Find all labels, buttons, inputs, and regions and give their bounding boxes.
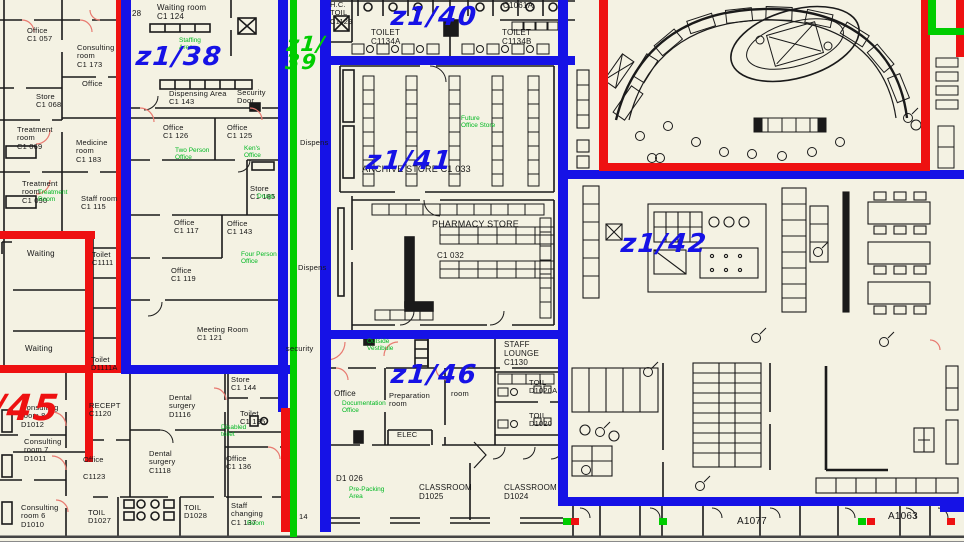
zone-boundary-blue [121,0,131,374]
room-label: Office C1 126 [163,124,188,141]
zone-boundary-red [599,163,930,171]
room-label: CLASSROOM D1025 [419,484,472,502]
room-label: A1063 [888,511,918,522]
zone-boundary-red [281,408,290,532]
annotation-label: Ken's Office [244,145,261,159]
room-label: Dispensing Area C1 143 [169,90,227,107]
room-label: Consulting room 6 D1010 [21,504,58,529]
room-label: H.C. TOIL C1129 [330,1,353,26]
room-label: Toilet C1111 [92,251,113,268]
room-label: ELEC [397,431,417,439]
room-label: security [286,345,313,353]
annotation-label: Drugs [257,193,274,200]
zone-label-z141[interactable]: z1/41 [365,150,453,172]
room-label: TOIL D1027 [88,509,111,526]
zone-label-z142[interactable]: z1/42 [620,233,708,255]
room-label: Waiting room C1 124 [157,4,206,22]
annotation-label: Future Office Store [461,115,495,129]
zone-label-z140[interactable]: z1/40 [390,6,478,28]
room-label: Dispens [300,139,329,147]
status-marker [858,518,866,525]
room-label: Office C1 125 [227,124,252,141]
zone-boundary-green [928,28,964,35]
zone-label-z138[interactable]: z1/38 [135,46,223,68]
room-label: 28 [132,10,141,19]
zone-boundary-blue [121,365,291,374]
annotation-label: Two Person Office [175,147,209,161]
room-label: Treatment room C1 069 [17,126,53,151]
room-label: Preparation room [389,392,430,409]
zone-label-z139[interactable]: z1/ 39 [284,36,326,72]
floor-plan-drawing [0,0,964,545]
room-label: Meeting Room C1 121 [197,326,248,343]
room-label: 14 [299,513,308,521]
annotation-label: Treatment Room [38,189,67,203]
zone-label-z146[interactable]: z1/46 [390,364,478,386]
room-label: TOIL D1020A [529,379,557,396]
status-marker [563,518,571,525]
status-marker [571,518,579,525]
zone-boundary-red [599,0,608,170]
room-label: Office C1 143 [227,220,252,237]
room-label: Office C1 117 [174,219,199,236]
zone-boundary-blue [563,497,964,506]
room-label: Store C1 144 [231,376,256,393]
room-label: room [451,390,469,398]
room-label: Store C1 068 [36,93,61,110]
room-label: PHARMACY STORE [432,219,519,229]
room-label: Office [82,80,103,88]
zone-boundary-blue [940,503,964,512]
room-label: Waiting [25,345,53,354]
room-label: Waiting [27,250,55,259]
floor-plan-viewer: Office C1 057Consulting room C1 173Offic… [0,0,964,545]
zone-label-45[interactable]: /45 [0,394,61,425]
room-label: A1077 [737,516,767,527]
room-label: Office C1 057 [27,27,52,44]
room-label: Office C1 136 [226,455,251,472]
zone-boundary-red [0,231,95,239]
room-label: RECEPT C1120 [89,402,121,419]
room-label: Dental surgery D1116 [169,394,195,419]
room-label: C1 032 [437,252,464,261]
room-label: Office C1123 [83,456,106,481]
room-label: TOIL D1020 [529,412,552,429]
annotation-label: Room [247,520,264,527]
zone-boundary-green [290,0,297,537]
room-label: Staff room C1 115 [81,195,117,212]
status-marker [659,518,667,525]
zone-boundary-blue [331,330,558,339]
room-label: D1 026 [336,475,363,484]
room-label: TOILET C1134B [502,29,532,47]
room-label: Dispens [298,264,327,272]
status-marker [867,518,875,525]
room-label: Medicine room C1 183 [76,139,108,164]
room-label: CLASSROOM D1024 [504,484,557,502]
annotation-label: Outside Vestibule [367,338,393,352]
room-label: Office C1 119 [171,267,196,284]
annotation-label: Disabled toilet [221,424,246,438]
zone-boundary-blue [331,56,575,65]
annotation-label: Documentation Office [342,400,386,414]
room-label: Toilet D1111A [91,356,118,373]
status-marker [947,518,955,525]
room-label: C1061A [503,2,533,11]
annotation-label: Four Person Office [241,251,277,265]
sheet-edge [0,541,964,545]
room-label: STAFF LOUNGE C1130 [504,341,539,368]
room-label: Consulting room C1 173 [77,44,114,69]
zone-boundary-blue [568,170,964,179]
zone-boundary-blue [558,0,568,506]
room-label: TOIL D1028 [184,504,207,521]
annotation-label: Pre-Packing Area [349,486,384,500]
room-label: Office [334,390,356,399]
room-label: Dental surgery C1118 [149,450,175,475]
room-label: Consulting room 7 D1011 [24,438,61,463]
room-label: Security Door [237,89,266,106]
